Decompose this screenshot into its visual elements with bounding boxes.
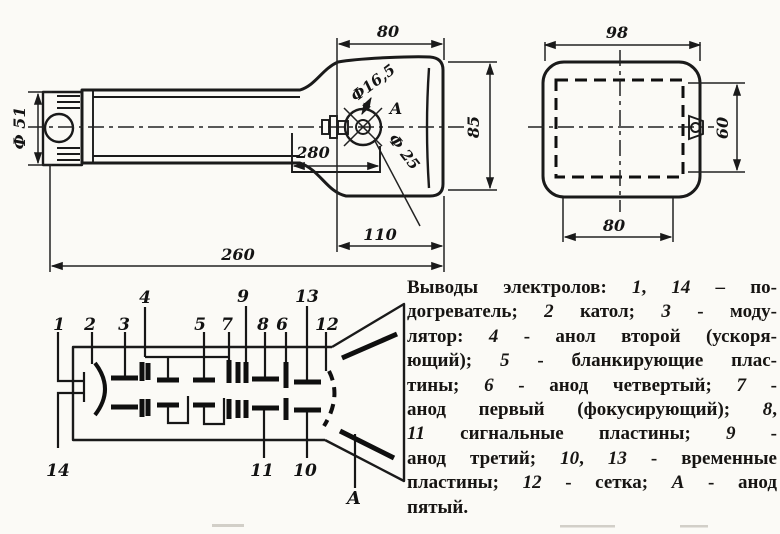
dim-total-length: 260 (50, 165, 442, 272)
dim-label-diameter: Ф 51 (10, 106, 29, 149)
side-contact-front (689, 116, 703, 139)
dim-label-80-front: 80 (602, 216, 625, 235)
caption-line: анод третий; 10, 13 - временные (407, 447, 777, 471)
caption-line: пятый. (407, 496, 777, 520)
pin-label-8: 8 (256, 315, 269, 335)
caption-line: ющий); 5 - бланкирующие плас- (407, 349, 777, 373)
pin-label-3: 3 (118, 315, 130, 335)
deflection-plate-upper (342, 334, 397, 358)
caption-line: пластины; 12 - сетка; А - анод (407, 471, 777, 495)
dim-front-width: 98 (545, 23, 700, 61)
signal-plates (252, 379, 279, 408)
pin-label-4: 4 (139, 288, 151, 308)
electrode-caption: Выводы электролов: 1, 14 – по- догревате… (407, 276, 777, 520)
pin-label-6: 6 (276, 315, 288, 335)
front-centerlines (528, 50, 714, 212)
dim-label-98: 98 (606, 23, 628, 42)
caption-line: анод первый (фокусирующий); 8, (407, 398, 777, 422)
dim-bulb-height: 85 (448, 62, 497, 190)
anode2-plates (157, 380, 179, 405)
pin-label-12: 12 (315, 315, 339, 335)
pin-label-5: 5 (194, 315, 206, 335)
page-edge-smudges (212, 524, 708, 528)
modulator-plates (111, 362, 148, 417)
dim-front-height: 60 (688, 83, 745, 172)
caption-line: догреватель; 2 катол; 3 - моду- (407, 300, 777, 324)
pin-label-anode5: А (345, 488, 362, 509)
pin-label-10: 10 (293, 461, 317, 481)
pin-label-14: 14 (46, 461, 70, 481)
dim-label-110: 110 (363, 225, 396, 244)
electrode-links (168, 357, 224, 424)
caption-line: лятор: 4 - анол второй (ускоря- (407, 325, 777, 349)
pin-label-13: 13 (295, 287, 319, 307)
pin-label-7: 7 (221, 315, 233, 335)
base-pins-hatch (57, 96, 80, 160)
screen-inner-face (427, 68, 429, 188)
pin-label-2: 2 (83, 315, 96, 335)
deflection-plate-lower (340, 431, 394, 458)
base-key-tip (45, 114, 73, 142)
dim-bulb-length: 110 (339, 196, 444, 272)
dim-screen-width: 80 (563, 198, 673, 242)
dim-label-85: 85 (464, 116, 483, 139)
dim-label-280: 280 (295, 143, 329, 162)
pin-label-1: 1 (53, 315, 65, 335)
dim-label-contact-cap: Ф 25 (384, 130, 423, 173)
timing-plates (294, 382, 321, 410)
electrode-schematic: 1 2 3 4 5 7 9 8 6 13 12 14 11 10 А (46, 287, 404, 509)
caption-line: тины; 6 - анод четвертый; 7 - (407, 374, 777, 398)
dim-label-80-top: 80 (376, 22, 399, 41)
caption-line: 11 сигнальные пластины; 9 - (407, 422, 777, 446)
cathode (95, 363, 105, 415)
dim-label-60: 60 (713, 117, 732, 139)
pin-label-11: 11 (250, 461, 274, 481)
blanking-plates (193, 380, 215, 405)
anode1-cylinder (229, 360, 246, 419)
grid-electrode (324, 371, 334, 426)
side-view: Ф 51 80 85 Ф16,5 А Ф 25 280 110 26 (10, 22, 497, 272)
anode-view-label: А (388, 99, 402, 118)
pin-label-9: 9 (237, 287, 249, 307)
front-view: 98 60 80 (528, 23, 745, 242)
dim-label-260: 260 (220, 245, 254, 264)
caption-line: Выводы электролов: 1, 14 – по- (407, 276, 777, 300)
scanned-crt-datasheet-figure: Ф 51 80 85 Ф16,5 А Ф 25 280 110 26 (0, 0, 780, 534)
pin-labels: 1 2 3 4 5 7 9 8 6 13 12 14 11 10 А (46, 287, 361, 509)
